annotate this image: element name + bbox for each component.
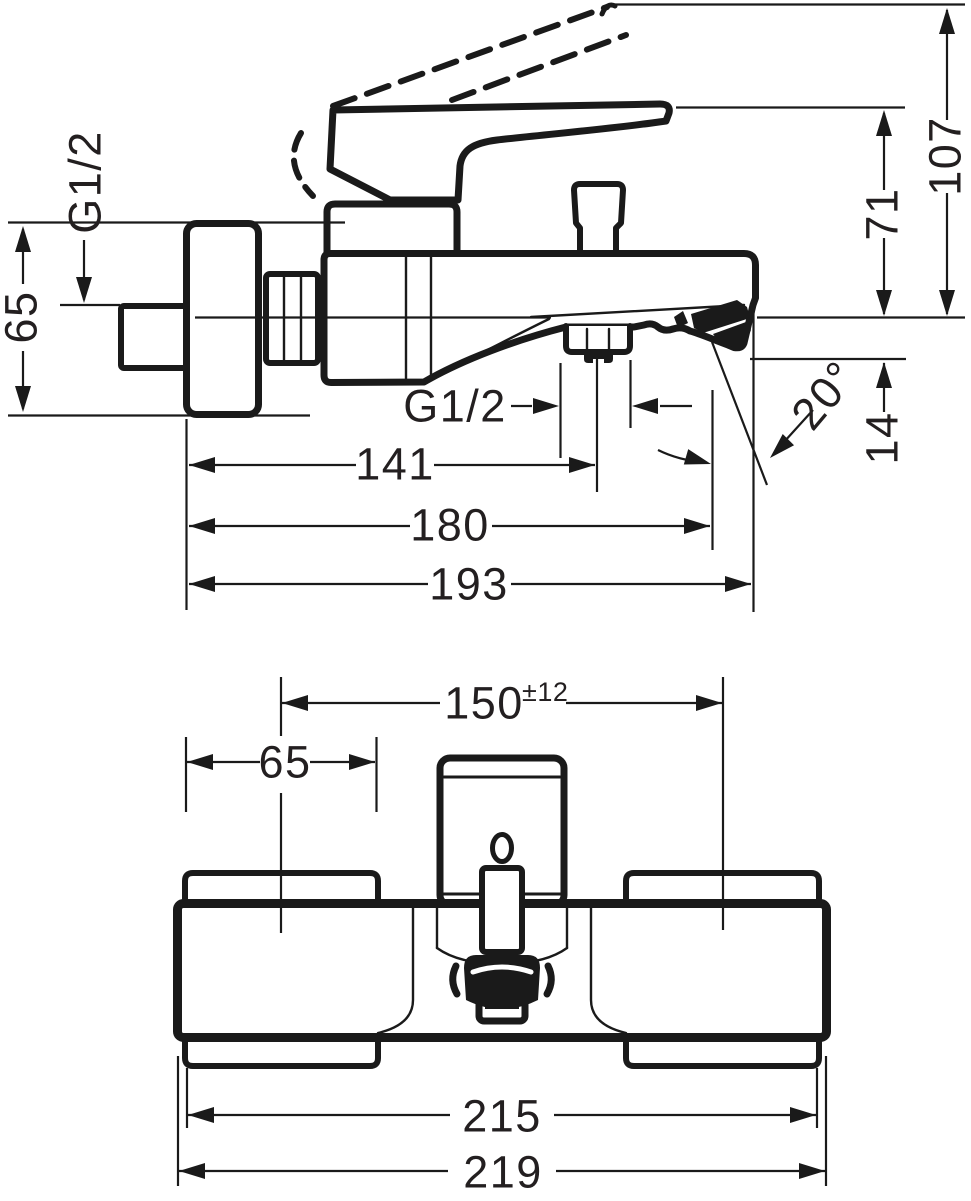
dim-angle-20: 20°	[658, 351, 867, 472]
dim-14: 14	[857, 362, 908, 465]
angle-20-label: 20°	[781, 351, 867, 439]
dim-65-front: 65	[187, 737, 375, 788]
g12-outlet-text: G1/2	[403, 381, 507, 432]
dim-65-front-label: 65	[258, 737, 311, 788]
dim-180: 180	[189, 500, 710, 551]
dim-215-label: 215	[462, 1091, 542, 1142]
dim-150: 150 ±12	[282, 677, 722, 729]
inlet-stub	[121, 306, 186, 368]
g12-wall-text: G1/2	[60, 130, 111, 234]
dim-219: 219	[179, 1147, 825, 1198]
label-g12-wall: G1/2	[60, 130, 111, 303]
dim-65-side-label: 65	[0, 290, 47, 343]
dim-71: 71	[857, 110, 908, 316]
dim-14-label: 14	[857, 411, 908, 464]
side-view: 107 71 14 65 G1/2 G1	[0, 5, 971, 613]
front-view: 150 ±12 65 215 219	[178, 677, 827, 1198]
handshower-outlet	[566, 326, 630, 363]
dim-150-tolerance: ±12	[522, 677, 568, 707]
dim-193-label: 193	[429, 559, 509, 610]
dim-65-side: 65	[0, 226, 47, 412]
dim-107: 107	[920, 8, 971, 316]
diverter-knob-side	[574, 184, 623, 254]
dim-107-label: 107	[920, 116, 971, 196]
technical-drawing: 107 71 14 65 G1/2 G1	[0, 0, 971, 1201]
dim-215: 215	[188, 1091, 816, 1142]
dim-141-label: 141	[355, 439, 435, 490]
handle-stem-front	[482, 868, 522, 952]
dim-219-label: 219	[463, 1147, 543, 1198]
dim-180-label: 180	[410, 500, 490, 551]
cartridge-cap	[327, 204, 457, 255]
dim-193: 193	[189, 559, 751, 610]
dim-150-label: 150	[444, 678, 524, 729]
label-g12-outlet: G1/2	[403, 381, 692, 432]
dim-71-label: 71	[857, 187, 908, 240]
wall-escutcheon-side	[187, 224, 259, 415]
bath-mixer-dimension-drawing: 107 71 14 65 G1/2 G1	[0, 0, 971, 1201]
dim-141: 141	[189, 439, 595, 490]
